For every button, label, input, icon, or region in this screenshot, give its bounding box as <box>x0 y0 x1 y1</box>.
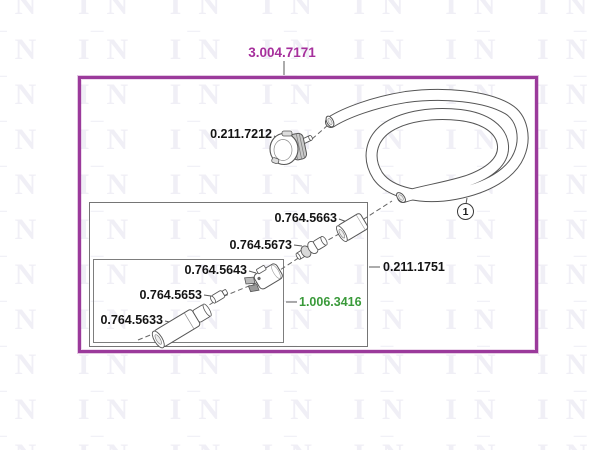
fitting-drawing <box>294 234 330 262</box>
part-label-fitting: 0.764.5673 <box>212 238 292 252</box>
part-label-connector: 0.211.7212 <box>192 127 272 141</box>
balloon-1-marker[interactable]: 1 <box>457 203 474 220</box>
part-label-plug-body: 0.764.5643 <box>167 263 247 277</box>
diagram-line-art <box>0 0 600 450</box>
part-label-cover-sleeve: 0.764.5633 <box>83 313 163 327</box>
part-label-hose-assembly: 0.211.1751 <box>383 260 445 274</box>
axis-line-connector <box>312 125 328 139</box>
fitting-leader-line <box>294 245 302 246</box>
part-label-bead: 0.764.5653 <box>122 288 202 302</box>
sub-assembly-link[interactable]: 1.006.3416 <box>299 295 362 309</box>
bead-leader-line <box>204 295 211 296</box>
sleeve-upper-drawing <box>334 213 368 243</box>
plug-body-drawing <box>242 259 283 295</box>
connector-drawing <box>270 131 313 165</box>
assembly-title-link[interactable]: 3.004.7171 <box>231 45 333 60</box>
part-label-sleeve-upper: 0.764.5663 <box>257 211 337 225</box>
hose-drawing <box>324 95 522 204</box>
plug-body-leader-line <box>249 271 256 273</box>
